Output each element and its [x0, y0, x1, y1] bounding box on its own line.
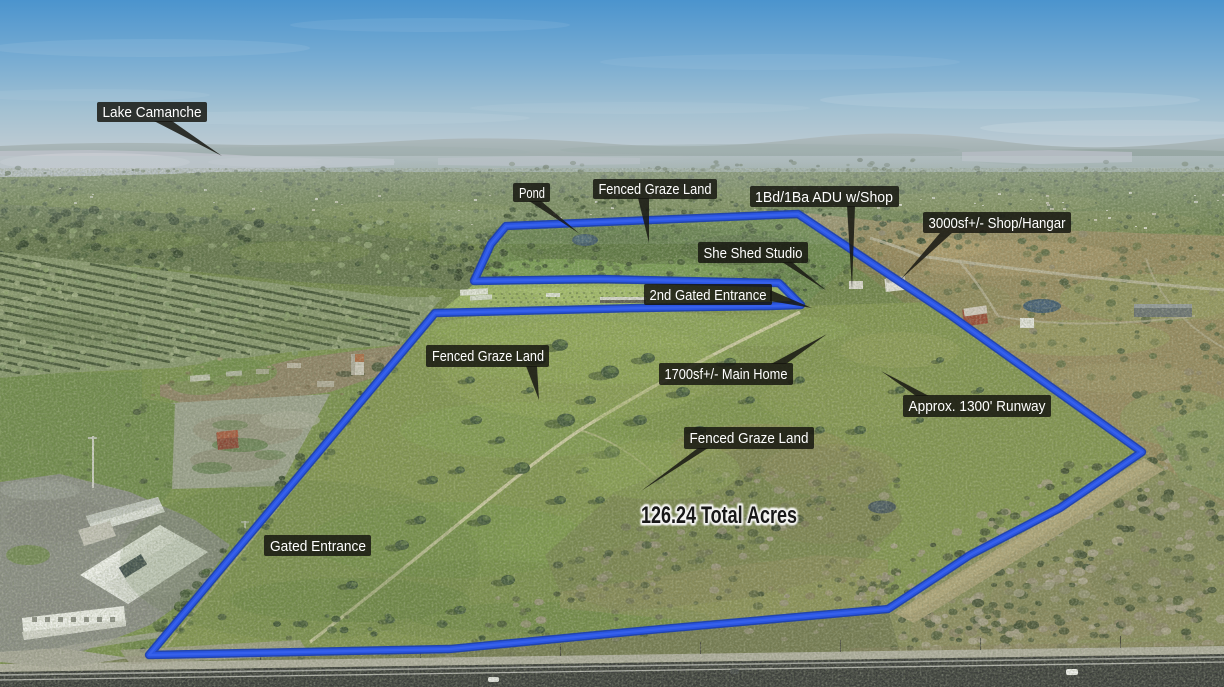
svg-text:126.24 Total Acres: 126.24 Total Acres — [641, 502, 797, 529]
svg-text:Approx. 1300' Runway: Approx. 1300' Runway — [909, 398, 1046, 415]
svg-text:Fenced Graze Land: Fenced Graze Land — [690, 430, 809, 447]
svg-text:Lake Camanche: Lake Camanche — [103, 104, 202, 121]
svg-text:Pond: Pond — [519, 185, 545, 202]
svg-text:3000sf+/- Shop/Hangar: 3000sf+/- Shop/Hangar — [929, 215, 1066, 232]
svg-text:Fenced Graze Land: Fenced Graze Land — [599, 181, 712, 198]
svg-text:Gated Entrance: Gated Entrance — [270, 538, 366, 555]
svg-text:She Shed Studio: She Shed Studio — [704, 245, 803, 262]
svg-text:1700sf+/- Main Home: 1700sf+/- Main Home — [665, 366, 788, 383]
svg-text:1Bd/1Ba ADU w/Shop: 1Bd/1Ba ADU w/Shop — [755, 189, 893, 206]
svg-text:Fenced Graze Land: Fenced Graze Land — [432, 348, 544, 365]
svg-text:2nd Gated Entrance: 2nd Gated Entrance — [650, 287, 767, 304]
